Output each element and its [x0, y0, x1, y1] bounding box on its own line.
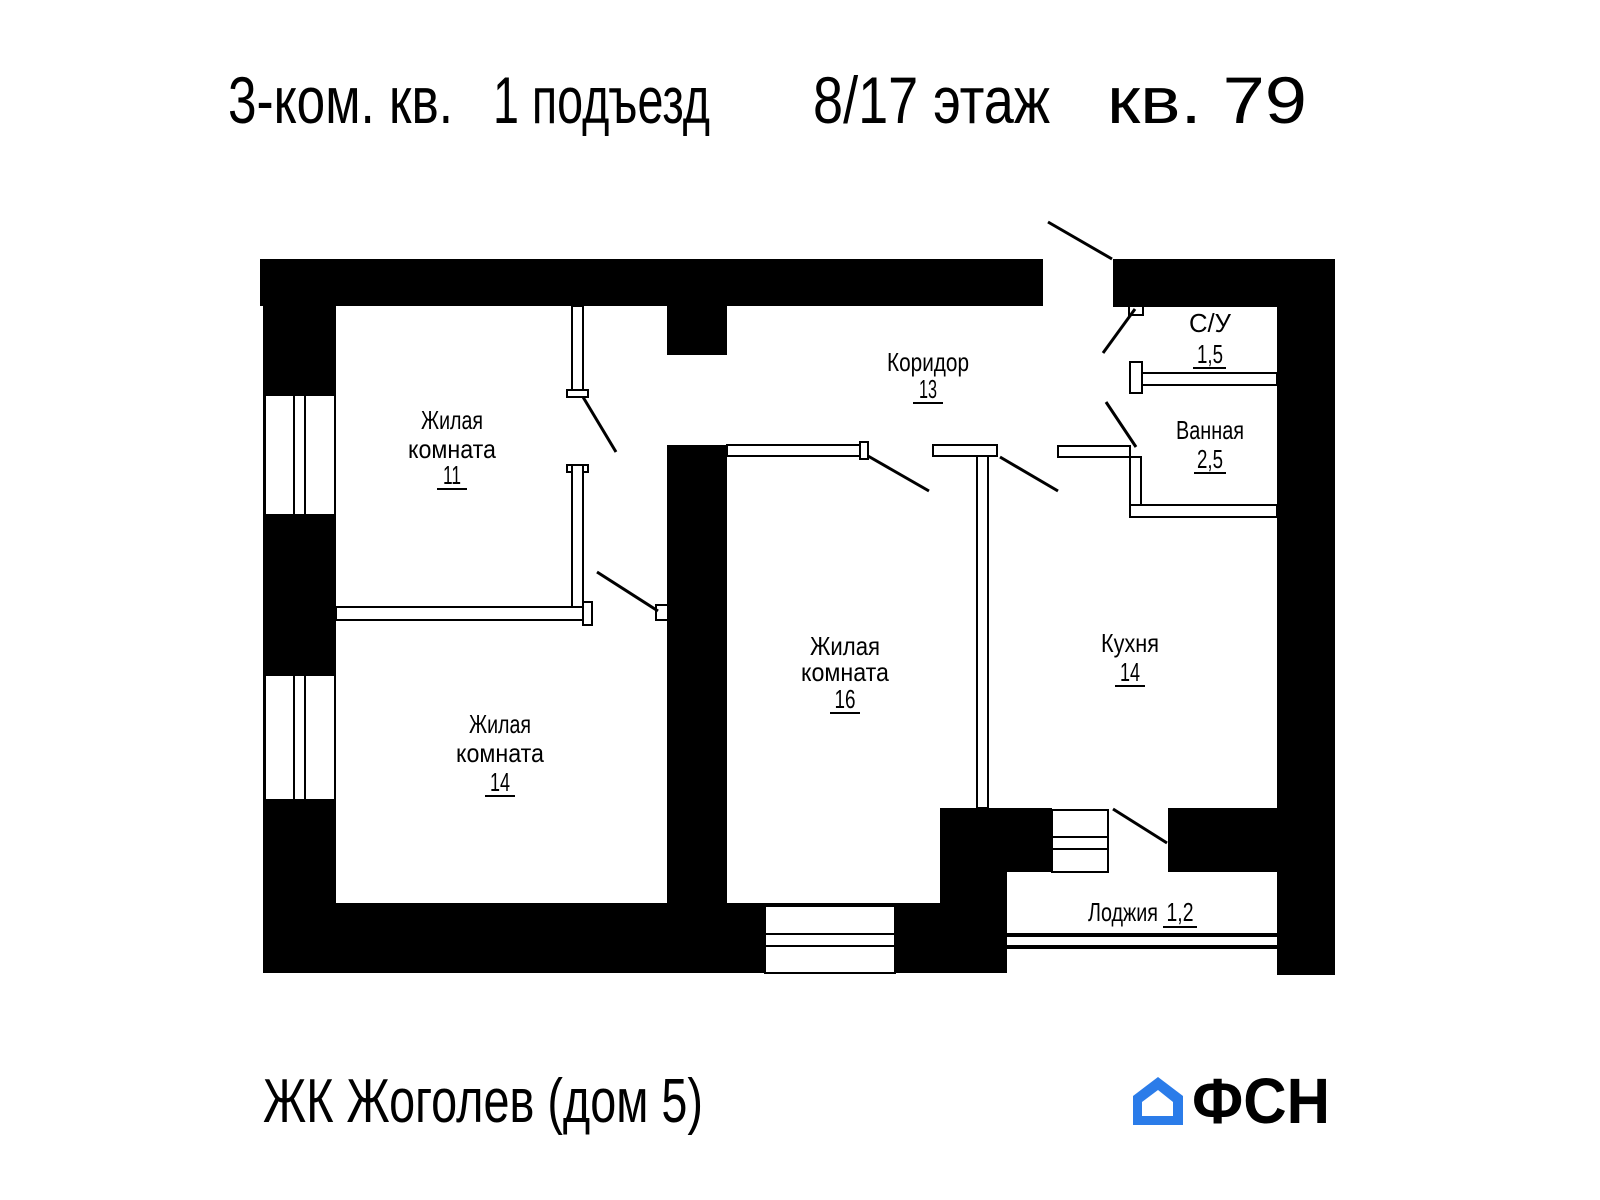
window-frame [765, 906, 895, 973]
room-area: 14 [1120, 657, 1140, 687]
room-name: Ванная [1176, 415, 1244, 445]
partition-cap [583, 602, 592, 625]
partition-living3-kitchen [977, 456, 988, 808]
partition-door-jamb [656, 605, 668, 620]
loggia-parapet [1007, 933, 1277, 949]
partition-bathroom-north [1058, 446, 1130, 457]
room-label-corridor: Коридор 13 [887, 347, 969, 404]
door-loggia [1113, 809, 1167, 843]
room-label-living2: Жилая комната 14 [456, 709, 544, 797]
partition-cap [860, 442, 868, 459]
room-area: 13 [919, 374, 937, 404]
partition-living1-east-upper [572, 306, 583, 397]
window-frame [265, 675, 335, 800]
door-wc [1103, 309, 1135, 353]
floor-plan-page: 3-ком. кв. 1 подъезд 8/17 этаж кв. 79 [0, 0, 1600, 1200]
title-apartment-number: кв. 79 [1107, 63, 1307, 137]
room-label-living3: Жилая комната 16 [801, 631, 889, 714]
window-frame [265, 395, 335, 515]
wall-interior-stub [667, 306, 727, 355]
room-area: 1,5 [1197, 339, 1223, 369]
room-area: 2,5 [1197, 444, 1223, 474]
room-name: Жилая [469, 709, 531, 739]
title-apartment-type: 3-ком. кв. [228, 63, 453, 137]
wall-top-left [260, 259, 1043, 306]
partition-cap [1130, 362, 1142, 393]
room-name: Кухня [1101, 628, 1159, 658]
room-label-wc: С/У 1,5 [1189, 308, 1231, 369]
door-bathroom [1106, 402, 1136, 447]
partition-wc-bathroom [1142, 373, 1277, 385]
parapet-line [1007, 933, 1277, 937]
room-label-kitchen: Кухня 14 [1101, 628, 1159, 687]
room-area: 14 [490, 767, 510, 797]
footer: ЖК Жоголев (дом 5) ФСН [263, 1065, 1330, 1137]
window-living1 [265, 395, 335, 515]
wall-interior-main [667, 445, 727, 910]
window-kitchen-loggia [1052, 810, 1108, 872]
partition-bathroom-south [1130, 505, 1277, 517]
room-area: 11 [443, 460, 461, 490]
room-name: Коридор [887, 347, 969, 377]
door-living1 [583, 397, 616, 452]
partition-living1-east-lower [572, 465, 583, 610]
door-entrance [1048, 222, 1112, 259]
developer-logo: ФСН [1133, 1065, 1330, 1137]
wall-kitchen-loggia-right [1168, 808, 1277, 872]
room-label-bathroom: Ванная 2,5 [1176, 415, 1244, 474]
door-kitchen [1000, 457, 1058, 491]
partition-cap [567, 390, 588, 397]
room-area: 1,2 [1167, 897, 1194, 927]
logo-text: ФСН [1192, 1065, 1330, 1137]
door-living2 [597, 572, 658, 611]
wall-loggia-west [940, 872, 1007, 972]
wall-kitchen-loggia-left [940, 808, 1052, 872]
project-name: ЖК Жоголев (дом 5) [263, 1067, 703, 1136]
room-label-loggia: Лоджия 1,2 [1088, 897, 1197, 927]
wall-left [263, 259, 336, 973]
door-living3 [868, 456, 929, 491]
parapet-line [1007, 945, 1277, 949]
wall-right [1277, 259, 1335, 975]
room-name: комната [801, 657, 889, 687]
room-name: Жилая [421, 405, 483, 435]
window-frame [1052, 810, 1108, 872]
floor-plan-drawing: 3-ком. кв. 1 подъезд 8/17 этаж кв. 79 [0, 0, 1600, 1200]
room-name: комната [456, 738, 544, 768]
room-label-living1: Жилая комната 11 [408, 405, 496, 490]
window-living2 [265, 675, 335, 800]
window-living3-south [765, 906, 895, 973]
partition-living1-living2 [336, 607, 592, 620]
room-name: Лоджия [1088, 897, 1158, 927]
partition-living3-north [727, 445, 867, 456]
plan-title: 3-ком. кв. 1 подъезд 8/17 этаж кв. 79 [228, 63, 1307, 137]
room-name: С/У [1189, 308, 1231, 338]
title-floor: 8/17 этаж [813, 63, 1050, 137]
room-area: 16 [835, 684, 856, 714]
partition-corridor-south [933, 445, 997, 456]
title-entrance: 1 подъезд [493, 63, 710, 137]
